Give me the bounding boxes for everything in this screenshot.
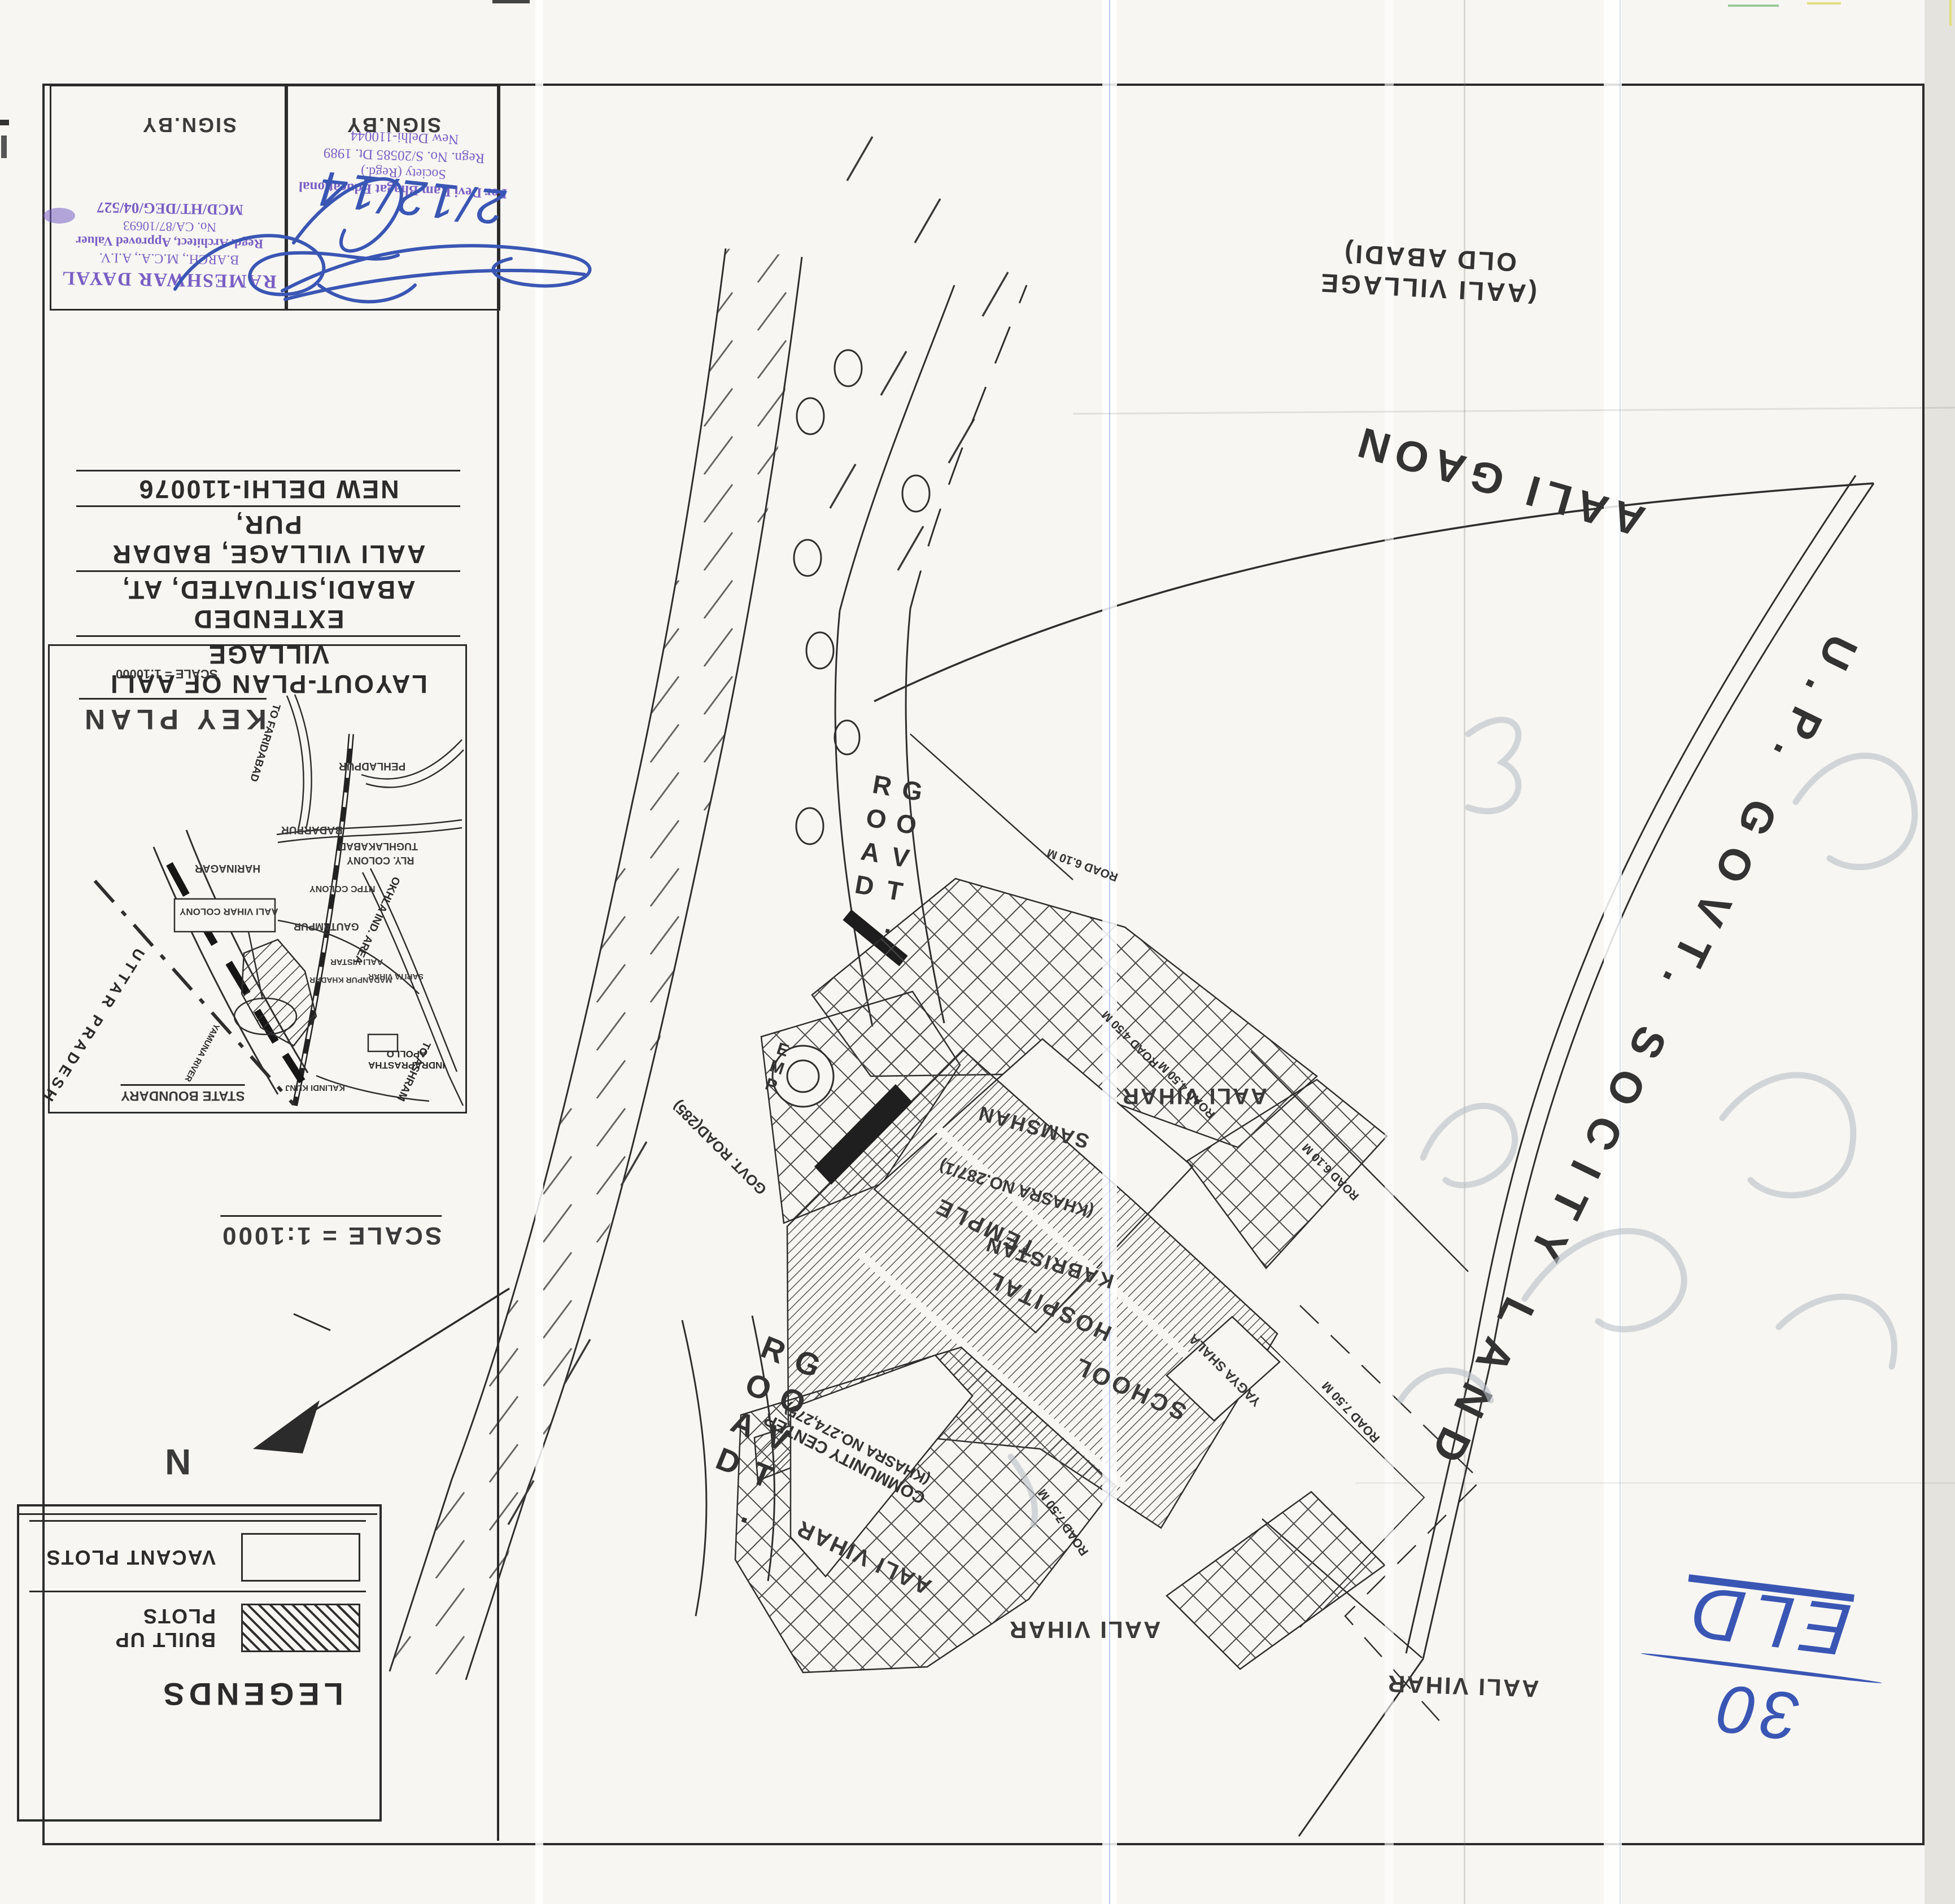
- society-signature: [282, 179, 590, 299]
- pencil-scribbles: [1011, 720, 1915, 1525]
- scanned-layout-plan-sheet: SIGN.BY SIGN.BY RAMESHWAR DAYAL B.ARCH.,…: [0, 0, 1955, 1904]
- blue-note: 30 ELD: [1620, 1563, 1904, 1767]
- architect-signature: [175, 235, 415, 302]
- stamp-smudge: [43, 208, 75, 224]
